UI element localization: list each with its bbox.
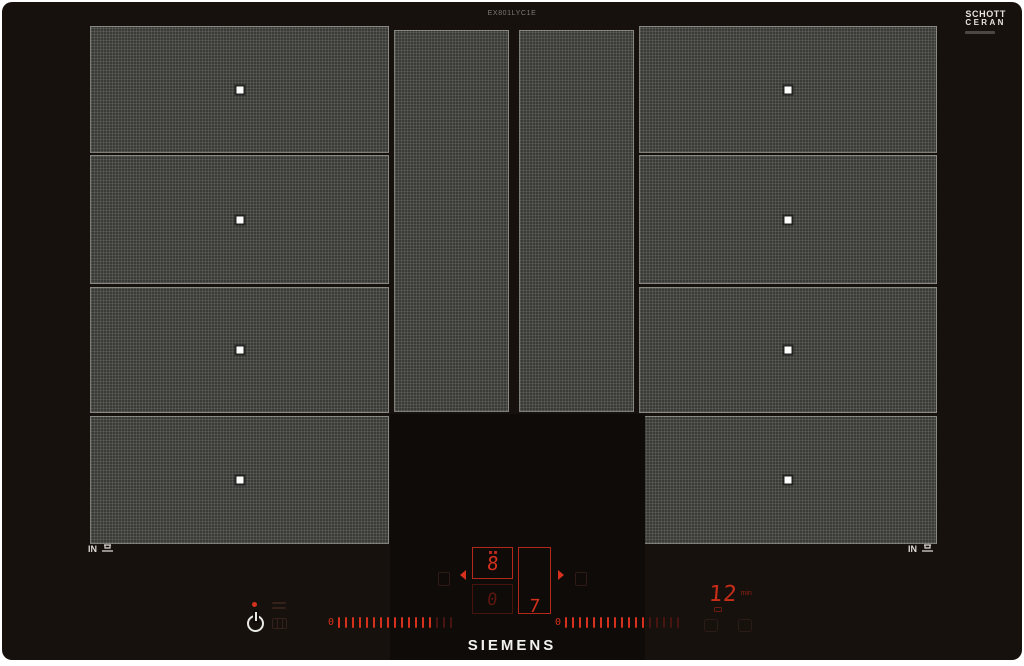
power-level-value: 8 [485, 548, 499, 580]
cleaning-lock-icon[interactable] [704, 619, 718, 632]
schott-logo-line2: CERAN [965, 19, 1006, 27]
in-label: IN [908, 544, 917, 554]
slider-bars[interactable] [338, 617, 452, 628]
zone-center-dot [236, 86, 243, 93]
pan-icon [921, 543, 934, 555]
cooking-zone-left-1 [90, 26, 389, 153]
cooking-zone-right-2 [639, 155, 937, 284]
power-display-bottom: 0 [472, 584, 513, 614]
schott-ceran-logo: SCHOTT CERAN [965, 10, 1006, 34]
power-icon[interactable] [247, 615, 264, 632]
cooking-zone-right-3 [639, 287, 937, 413]
cooking-zone-right-1 [639, 26, 937, 153]
model-number: EX801LYC1E [2, 10, 1022, 17]
power-display-top: 8 [472, 547, 513, 579]
in-label: IN [88, 544, 97, 554]
timer-setup-icon[interactable] [738, 619, 752, 632]
zone-center-dot [785, 216, 792, 223]
timer-unit: min [741, 590, 752, 597]
timer-icon [714, 607, 722, 612]
main-switch-indicator-dot [252, 602, 257, 607]
power-slider-right[interactable]: 0 [555, 616, 679, 629]
arrow-right-icon[interactable] [558, 570, 564, 580]
slider-zero-label: 0 [328, 617, 334, 628]
slider-zero-label: 0 [555, 617, 561, 628]
cooking-zone-left-3 [90, 287, 389, 413]
cooking-zone-left-4 [90, 416, 389, 544]
arrow-left-icon[interactable] [460, 570, 466, 580]
induction-marking-left: IN [88, 543, 114, 555]
power-level-value: 0 [486, 585, 499, 615]
timer-display[interactable]: 12min [709, 582, 752, 607]
zone-center-dot [785, 347, 792, 354]
cooking-zone-middle-left [394, 30, 509, 412]
siemens-logo: SIEMENS [2, 637, 1022, 654]
cooking-zone-middle-right [519, 30, 634, 412]
zone-select-right-icon[interactable] [575, 572, 587, 586]
cooking-zone-right-4 [639, 416, 937, 544]
cooking-zone-left-2 [90, 155, 389, 284]
slider-bars[interactable] [565, 617, 679, 628]
timer-value: 12 [708, 582, 739, 607]
zone-select-left-icon[interactable] [438, 572, 450, 586]
zone-center-dot [236, 477, 243, 484]
power-slider-left[interactable]: 0 [328, 616, 452, 629]
power-display-side: 7 [518, 547, 551, 614]
zone-center-dot [236, 216, 243, 223]
induction-marking-right: IN [908, 543, 934, 555]
schott-logo-subtext-bar [965, 31, 995, 34]
dim-grid-icon[interactable] [272, 618, 287, 629]
pan-icon [101, 543, 114, 555]
zone-center-dot [785, 86, 792, 93]
cooktop-surface: EX801LYC1E SCHOTT CERAN IN IN 8 [2, 2, 1022, 660]
dim-dashes-icon[interactable] [272, 599, 286, 612]
zone-center-dot [236, 347, 243, 354]
zone-center-dot [785, 477, 792, 484]
